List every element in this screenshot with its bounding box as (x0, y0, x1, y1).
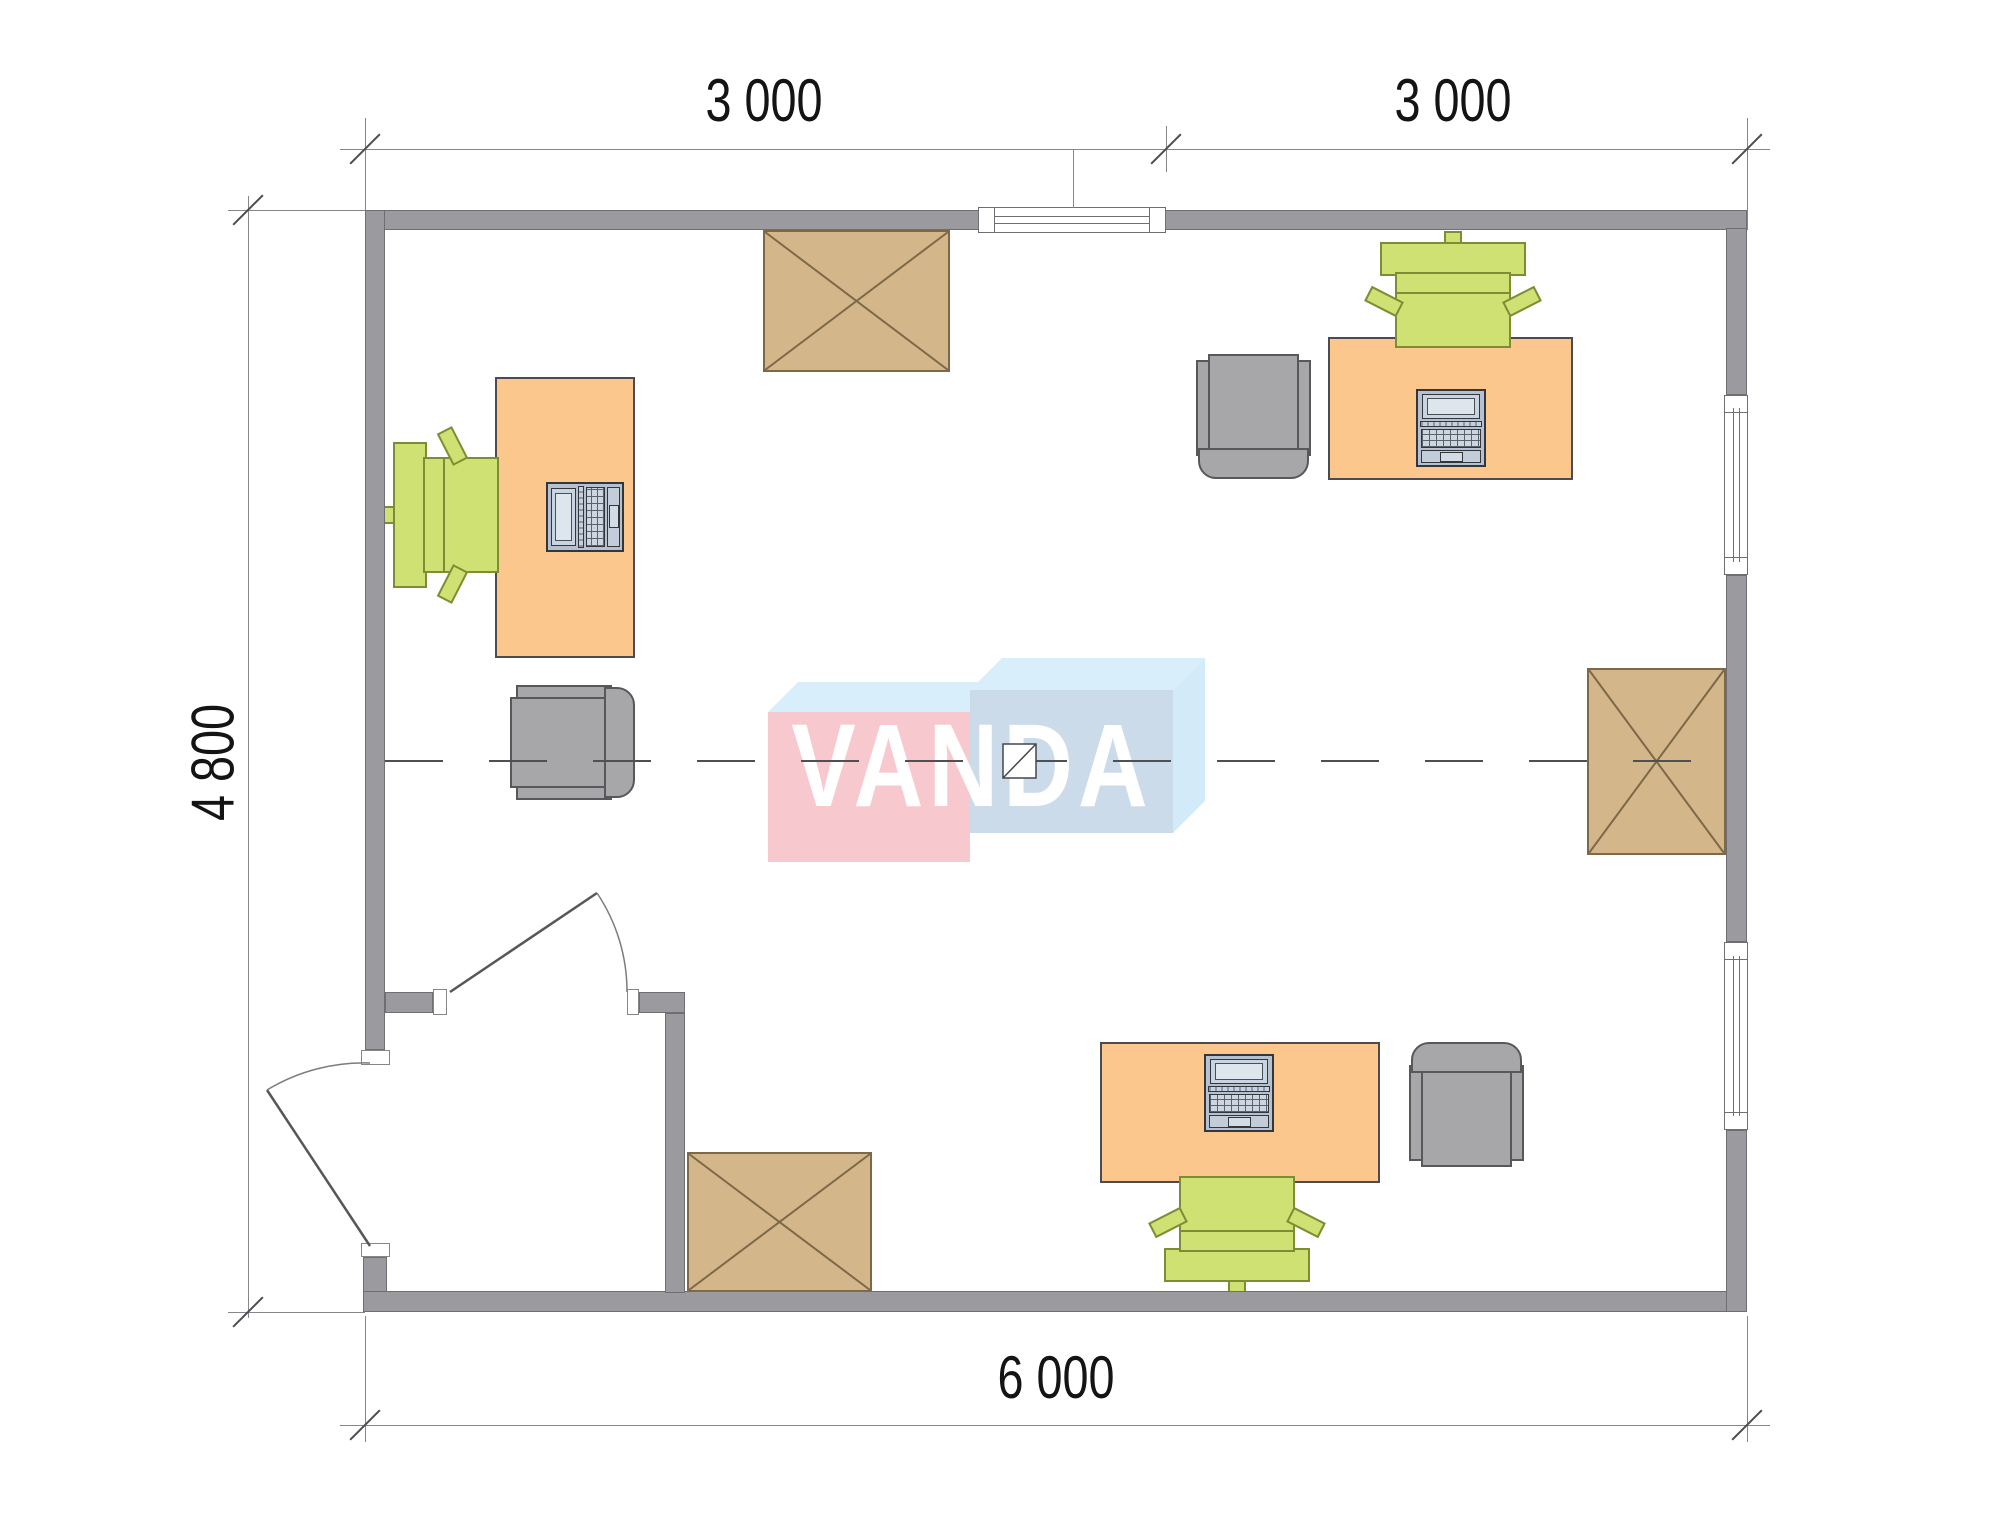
entrance-door-swing-arc (267, 1063, 370, 1090)
dimension-line-bottom (340, 1425, 1770, 1426)
floor-plan: VANDA (0, 0, 2000, 1520)
extension-line-top-left (365, 118, 366, 210)
dimension-line-left (248, 196, 249, 1318)
interior-door-swing-arc (597, 893, 627, 992)
door-layer (0, 0, 2000, 1520)
dimension-label-top-left: 3 000 (678, 66, 850, 135)
dimension-label-bottom: 6 000 (970, 1343, 1142, 1412)
extension-line-window-axis (1073, 149, 1074, 208)
extension-line-top-right (1747, 118, 1748, 230)
dimension-label-top-right: 3 000 (1367, 66, 1539, 135)
dimension-label-left: 4 800 (179, 677, 248, 849)
dimension-line-top (340, 149, 1770, 150)
interior-door-leaf (450, 893, 597, 992)
entrance-door-leaf (267, 1090, 370, 1246)
